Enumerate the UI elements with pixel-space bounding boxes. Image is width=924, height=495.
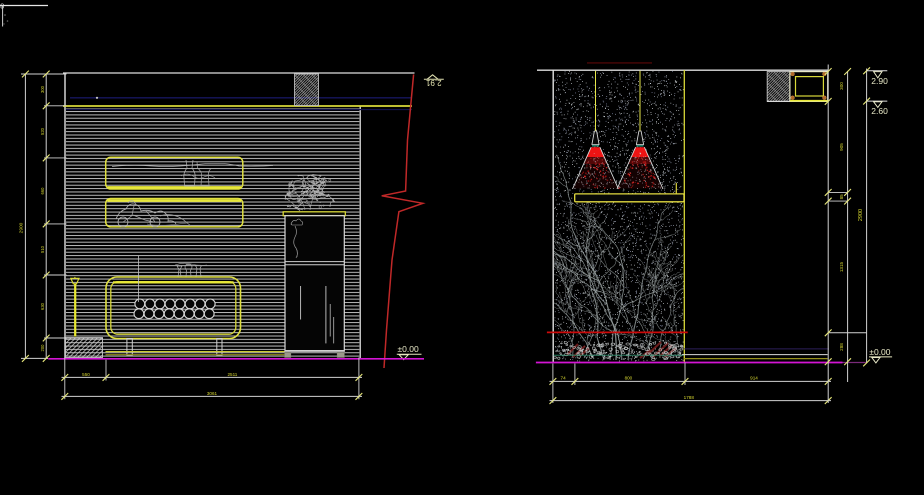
- svg-text:±0.00: ±0.00: [869, 347, 890, 357]
- svg-text:288: 288: [839, 343, 844, 351]
- svg-text:520: 520: [40, 127, 45, 135]
- svg-text:510: 510: [40, 245, 45, 253]
- svg-text:2900: 2900: [858, 209, 864, 221]
- svg-text:630: 630: [40, 302, 45, 310]
- svg-text:300: 300: [839, 82, 844, 90]
- svg-text:660: 660: [40, 187, 45, 195]
- svg-text:914: 914: [750, 376, 758, 381]
- svg-text:300: 300: [40, 85, 45, 93]
- svg-text:3061: 3061: [207, 391, 218, 396]
- svg-text:±0.00: ±0.00: [398, 344, 419, 354]
- svg-text:2.90: 2.90: [871, 76, 888, 86]
- svg-text:2900: 2900: [19, 222, 25, 233]
- svg-text:8: 8: [0, 4, 4, 11]
- svg-text:800: 800: [625, 376, 633, 381]
- svg-text:2.91: 2.91: [425, 78, 441, 87]
- svg-text:1788: 1788: [684, 395, 695, 400]
- svg-text:2511: 2511: [227, 372, 237, 377]
- svg-text:550: 550: [82, 372, 90, 377]
- svg-text:905: 905: [839, 143, 844, 151]
- svg-text:2.60: 2.60: [871, 106, 888, 116]
- svg-text:1315: 1315: [839, 261, 844, 272]
- svg-text:74: 74: [561, 376, 567, 381]
- svg-text:85: 85: [839, 194, 844, 200]
- svg-text:200: 200: [40, 344, 45, 352]
